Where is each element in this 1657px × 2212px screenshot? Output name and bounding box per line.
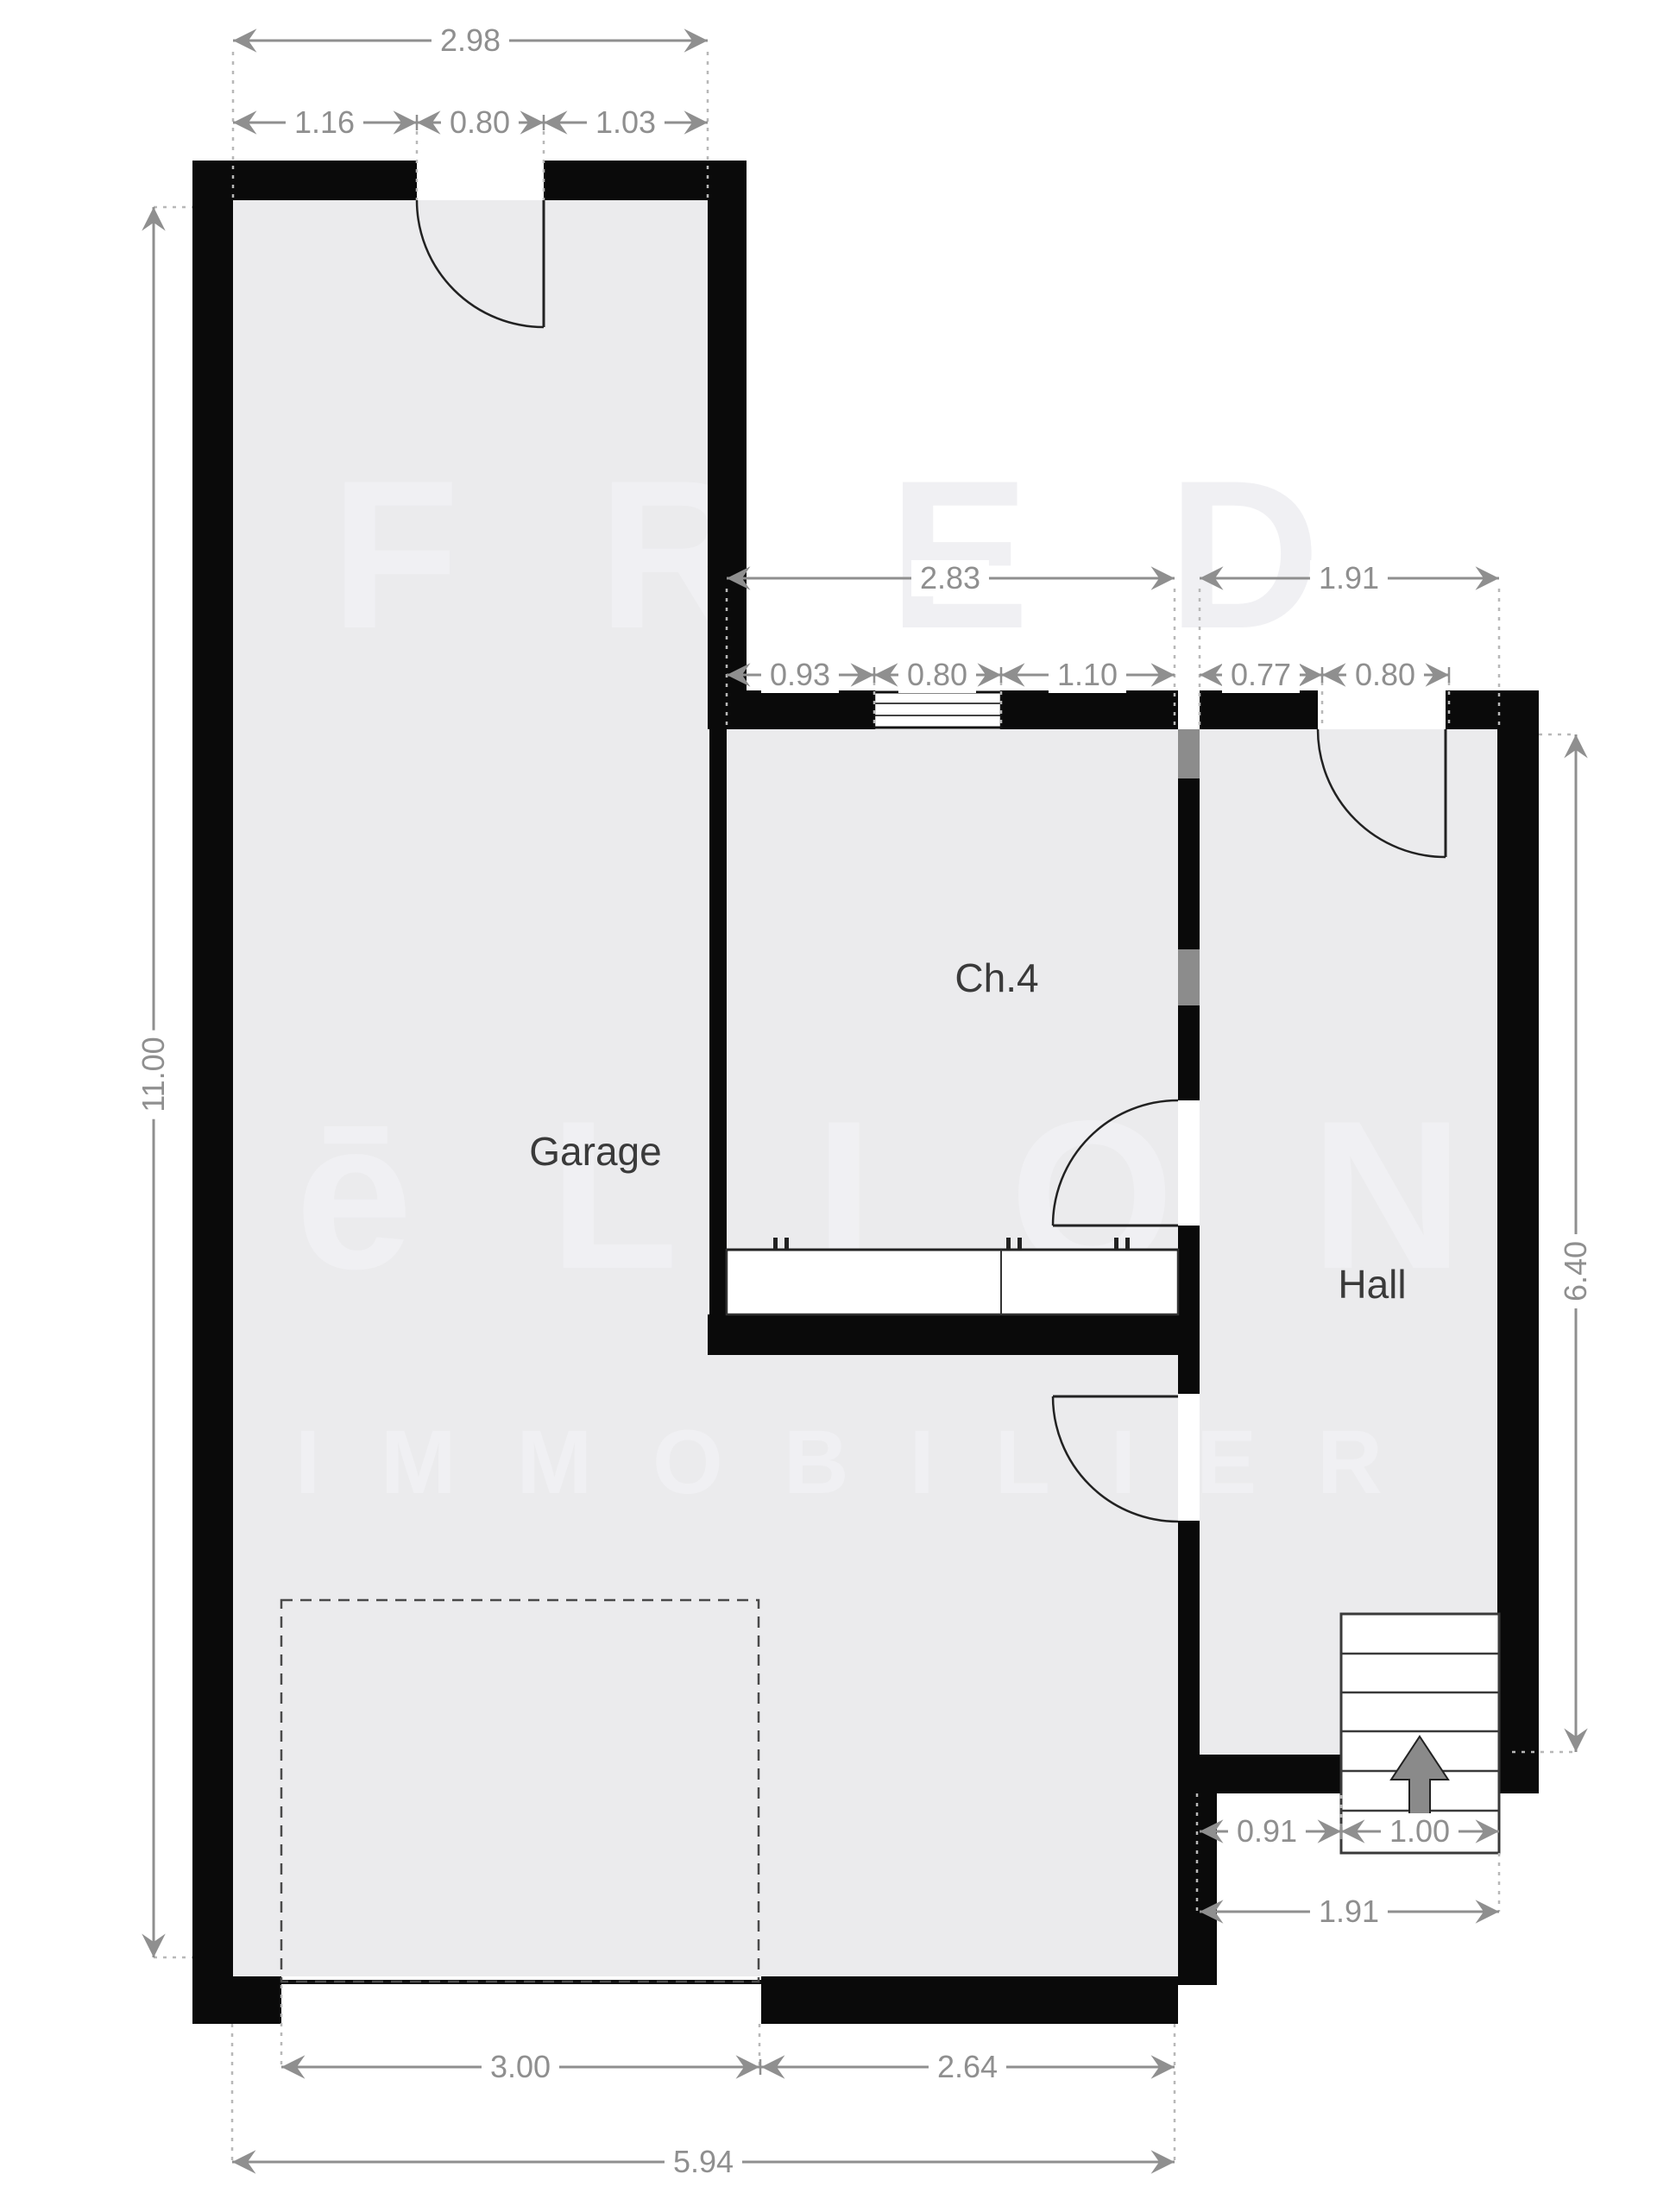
dim-ch4-part-1: 0.93 bbox=[761, 657, 839, 693]
dim-top-part-2: 0.80 bbox=[441, 104, 519, 141]
watermark-line-3: IMMOBILIER bbox=[295, 1417, 1443, 1508]
dim-ch4-part-2: 0.80 bbox=[898, 657, 976, 693]
floor-plan: FRED ēLION IMMOBILIER bbox=[0, 0, 1657, 2212]
dim-bottom-wall: 2.64 bbox=[929, 2049, 1006, 2085]
dim-ch4-part-3: 1.10 bbox=[1049, 657, 1126, 693]
wall-jamb-segments bbox=[1178, 729, 1200, 1005]
room-label-hall: Hall bbox=[1338, 1261, 1406, 1308]
dim-landing-left: 0.91 bbox=[1228, 1813, 1306, 1850]
dim-top-total: 2.98 bbox=[432, 22, 509, 59]
dim-garage-door: 3.00 bbox=[482, 2049, 559, 2085]
dim-ch4-total: 2.83 bbox=[911, 560, 989, 596]
dim-landing-total: 1.91 bbox=[1310, 1894, 1388, 1930]
dim-bottom-total: 5.94 bbox=[665, 2144, 742, 2180]
dim-hall-part-2: 0.80 bbox=[1346, 657, 1424, 693]
room-label-ch4: Ch.4 bbox=[955, 955, 1038, 1001]
dim-hall-total: 1.91 bbox=[1310, 560, 1388, 596]
room-label-garage: Garage bbox=[529, 1128, 661, 1175]
dim-stairs-width: 1.00 bbox=[1381, 1813, 1459, 1850]
watermark-line-1: FRED bbox=[331, 449, 1459, 660]
dim-left-height: 11.00 bbox=[135, 1030, 172, 1119]
dim-right-height: 6.40 bbox=[1558, 1234, 1594, 1308]
dim-hall-part-1: 0.77 bbox=[1222, 657, 1300, 693]
window bbox=[874, 690, 1001, 729]
dim-top-part-1: 1.16 bbox=[286, 104, 363, 141]
dim-top-part-3: 1.03 bbox=[587, 104, 665, 141]
